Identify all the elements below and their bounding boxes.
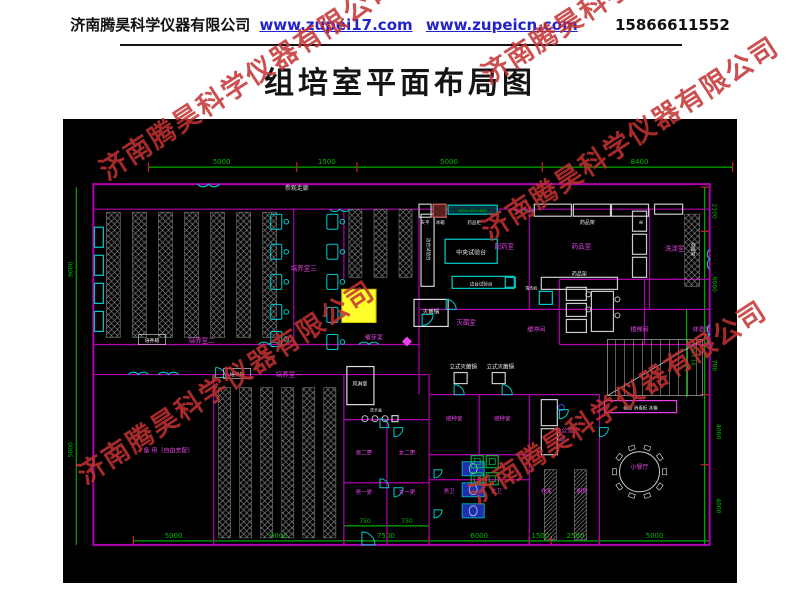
text: 女一更 <box>399 488 416 496</box>
door-icon <box>502 385 512 395</box>
text: 柜 <box>639 220 645 224</box>
rect <box>454 373 467 384</box>
text: 接种室 <box>494 415 511 423</box>
rect <box>591 291 613 331</box>
rect <box>573 204 610 216</box>
rect <box>633 257 647 277</box>
text: 700 <box>711 360 718 372</box>
culture-rack <box>399 209 412 277</box>
floorplan-canvas: 500015005000840021006000700400040009024.… <box>63 119 737 583</box>
door-icon <box>434 470 442 478</box>
text: 4000 <box>715 424 722 439</box>
equipment-label: 培养箱 <box>145 337 160 344</box>
clean-bench-icon <box>489 476 495 482</box>
circle <box>372 416 378 422</box>
text: 边台试验台 <box>425 238 432 261</box>
text: 7500 <box>377 531 395 540</box>
text: 中央试验台 <box>456 248 486 256</box>
clean-bench-icon <box>489 459 495 465</box>
culture-rack <box>132 212 146 337</box>
circle <box>558 435 564 441</box>
link-zupeicn[interactable]: www.zupeicn.com <box>426 16 578 34</box>
culture-rack <box>211 212 225 337</box>
shaft <box>574 470 586 540</box>
door-icon <box>454 385 464 395</box>
circle <box>615 297 620 302</box>
rect <box>541 400 557 426</box>
text: 天平 <box>421 220 430 226</box>
text: 1500×400×800 <box>458 209 488 213</box>
door-icon <box>434 510 442 518</box>
text: 女二更 <box>399 449 416 457</box>
rect <box>611 204 648 216</box>
highlight-square <box>342 289 376 322</box>
text: 清洗机 <box>525 284 537 290</box>
text: 5000 <box>213 157 231 166</box>
culture-rack <box>106 212 120 337</box>
text: 药品架 <box>572 270 587 277</box>
stairs <box>607 339 702 395</box>
incubator-icon <box>327 334 345 349</box>
rect <box>566 319 586 332</box>
text: 备 用（自由支配） <box>144 447 194 455</box>
text: 药品架 <box>580 219 595 226</box>
shaft <box>544 470 556 540</box>
culture-rack <box>158 212 172 337</box>
text: 碗柜 消毒柜 冰箱 <box>623 405 658 412</box>
text: 催芽室 <box>365 333 383 341</box>
rect <box>433 204 446 217</box>
circle <box>362 416 368 422</box>
text: 2100 <box>711 204 718 219</box>
page: { "header": { "company": "济南腾昊科学仪器有限公司",… <box>0 0 800 600</box>
incubator-icon <box>327 244 345 259</box>
text: 6000 <box>711 277 718 292</box>
text: 晾瓶架 <box>690 243 697 257</box>
label-corridor: 参观走廊 <box>285 184 309 192</box>
text: 小餐厅 <box>631 463 649 471</box>
chair-icon <box>612 469 616 475</box>
rect <box>392 416 398 422</box>
text: 缓冲间 <box>527 325 545 333</box>
rect <box>534 204 571 216</box>
culture-rack <box>261 388 273 538</box>
text: 药品室 <box>572 241 592 250</box>
door-icon <box>362 532 375 545</box>
culture-rack <box>374 209 387 277</box>
header-divider <box>120 44 682 46</box>
text: 男一更 <box>356 489 373 496</box>
incubator-icon <box>327 214 345 229</box>
text: 9000 <box>67 262 74 277</box>
rect <box>94 311 103 331</box>
text: 4000 <box>715 498 722 513</box>
chair-icon <box>616 453 623 460</box>
text: 女卫 <box>491 487 503 495</box>
text: 药品柜 <box>467 219 481 226</box>
text: 办公室 <box>555 427 573 435</box>
chair-icon <box>616 483 623 490</box>
text: 8400 <box>631 157 649 166</box>
text: 边台试验台 <box>470 280 493 287</box>
chair-icon <box>663 469 667 475</box>
text: 洗手盆 <box>370 407 382 413</box>
text: 750 <box>401 518 413 525</box>
link-zupei17[interactable]: www.zupei17.com <box>259 16 412 34</box>
rect <box>94 283 103 303</box>
text: 6000 <box>470 531 488 540</box>
text: 洗涤室 <box>665 243 685 252</box>
equipment-label: 培养箱 <box>230 371 245 378</box>
text: 男卫 <box>444 488 456 495</box>
text: 冰箱 <box>436 219 445 226</box>
chair-icon <box>656 453 663 460</box>
text: 厨房 <box>577 487 589 495</box>
text: 休息室 <box>693 325 711 333</box>
company-name: 济南腾昊科学仪器有限公司 <box>70 16 250 34</box>
chair-icon <box>644 445 651 451</box>
rect <box>94 255 103 275</box>
chair-icon <box>644 493 651 499</box>
page-title: 组培室平面布局图 <box>0 58 800 102</box>
text: 5000 <box>165 531 183 540</box>
culture-rack <box>303 388 315 538</box>
clean-bench-icon <box>486 473 498 485</box>
text: 5000 <box>646 531 664 540</box>
phone-number: 15866611552 <box>615 16 730 34</box>
rect <box>94 227 103 247</box>
text: 灭菌室 <box>456 317 476 326</box>
chair-icon <box>628 445 635 451</box>
text: 1500 <box>318 157 336 166</box>
text: 接种室 <box>446 415 463 423</box>
text: 楼梯间 <box>631 325 649 333</box>
door-icon <box>394 428 403 437</box>
text: 培养室三 <box>291 263 318 272</box>
culture-rack <box>237 212 251 337</box>
culture-rack <box>282 388 294 538</box>
chair-icon <box>656 483 663 490</box>
door-icon <box>422 314 433 325</box>
text: 5000 <box>440 157 458 166</box>
text: 立式灭菌锅 <box>486 363 514 371</box>
floorplan-svg: 500015005000840021006000700400040009024.… <box>63 119 737 583</box>
rect <box>492 373 505 384</box>
text: 培养室一 <box>276 370 303 379</box>
text: 仓库 <box>541 487 553 495</box>
text: 配药室 <box>494 241 514 250</box>
rect <box>539 291 552 304</box>
text: 培养室二 <box>189 335 216 344</box>
clean-bench-icon <box>474 476 480 482</box>
text: 男二更 <box>356 450 373 457</box>
door-icon <box>216 368 226 378</box>
text: 5000 <box>67 442 74 457</box>
clean-bench-icon <box>486 456 498 468</box>
culture-rack <box>349 209 362 277</box>
circle <box>615 313 620 318</box>
dining-table <box>619 452 659 492</box>
text: 立式灭菌锅 <box>449 363 477 371</box>
incubator-icon <box>327 274 345 289</box>
culture-rack <box>219 388 231 538</box>
chair-icon <box>628 493 635 499</box>
rect <box>633 234 647 254</box>
text: 风淋室 <box>352 381 367 388</box>
culture-rack <box>185 212 199 337</box>
culture-rack <box>240 388 252 538</box>
header: 济南腾昊科学仪器有限公司 www.zupei17.com www.zupeicn… <box>0 14 800 35</box>
door-icon <box>599 428 608 437</box>
text: 750 <box>359 518 371 525</box>
culture-rack <box>324 388 336 538</box>
